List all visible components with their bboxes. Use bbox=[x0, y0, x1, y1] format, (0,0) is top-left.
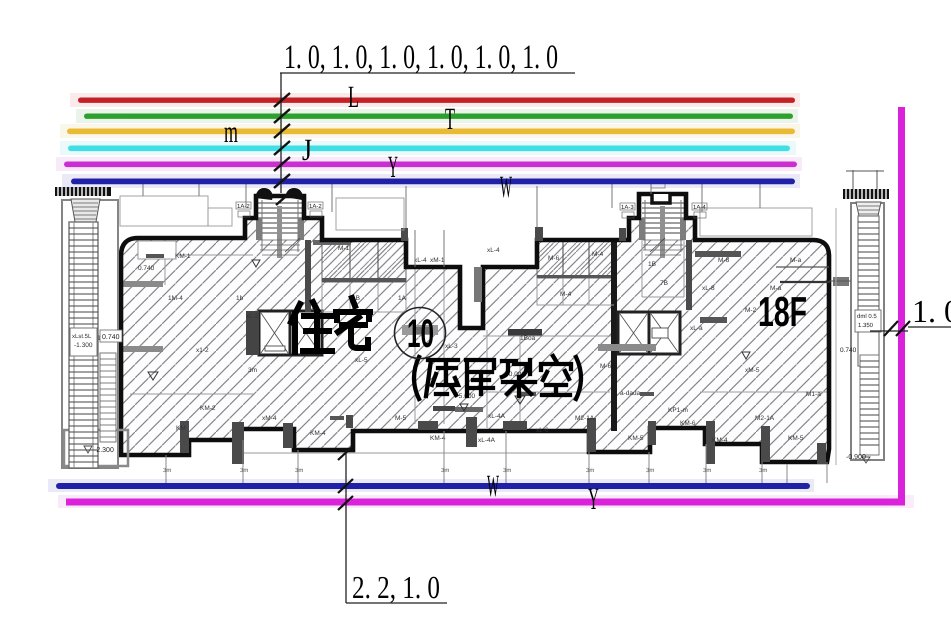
svg-text:xM-1: xM-1 bbox=[430, 257, 445, 264]
svg-text:1.350: 1.350 bbox=[858, 322, 874, 329]
svg-text:M-5: M-5 bbox=[395, 415, 407, 422]
svg-text:xL-2: xL-2 bbox=[246, 313, 259, 320]
svg-text:3m: 3m bbox=[703, 467, 711, 474]
svg-text:Y: Y bbox=[588, 481, 599, 516]
svg-text:M-1: M-1 bbox=[338, 245, 350, 252]
svg-text:L: L bbox=[348, 79, 359, 114]
svg-text:KM-4: KM-4 bbox=[310, 430, 326, 437]
svg-text:J: J bbox=[302, 132, 312, 167]
svg-text:KM-5: KM-5 bbox=[628, 435, 644, 442]
svg-text:xLst.5L: xLst.5L bbox=[72, 333, 92, 340]
svg-text:M-2: M-2 bbox=[745, 307, 757, 314]
svg-text:xL-5: xL-5 bbox=[355, 357, 368, 364]
svg-text:1M-4: 1M-4 bbox=[168, 295, 183, 302]
svg-text:1A-2: 1A-2 bbox=[237, 203, 250, 210]
svg-text:1. 0: 1. 0 bbox=[912, 293, 951, 329]
svg-text:10: 10 bbox=[407, 312, 434, 356]
svg-text:3m: 3m bbox=[646, 467, 654, 474]
svg-text:M-4: M-4 bbox=[560, 291, 572, 298]
svg-text:1A-3: 1A-3 bbox=[621, 204, 634, 211]
svg-text:1A: 1A bbox=[398, 295, 407, 302]
svg-text:W: W bbox=[487, 468, 499, 503]
svg-text:KM-2: KM-2 bbox=[200, 405, 216, 412]
svg-text:M2-1A: M2-1A bbox=[755, 415, 775, 422]
svg-text:3m: 3m bbox=[295, 467, 303, 474]
svg-text:0.740: 0.740 bbox=[102, 334, 120, 341]
svg-text:1. 0, 1. 0, 1. 0, 1. 0, 1. 0,: 1. 0, 1. 0, 1. 0, 1. 0, 1. 0, 1. 0 bbox=[284, 39, 558, 76]
svg-text:2. 2, 1. 0: 2. 2, 1. 0 bbox=[352, 569, 440, 605]
svg-text:xM-5: xM-5 bbox=[745, 367, 760, 374]
svg-text:xL-4A: xL-4A bbox=[488, 413, 506, 420]
svg-text:0.740: 0.740 bbox=[138, 265, 155, 272]
svg-text:a-dada: a-dada bbox=[620, 390, 641, 397]
svg-text:x1-2: x1-2 bbox=[196, 347, 209, 354]
svg-text:0.740: 0.740 bbox=[840, 347, 857, 354]
svg-text:3m: 3m bbox=[441, 467, 449, 474]
svg-text:3m: 3m bbox=[163, 467, 171, 474]
svg-text:M-a: M-a bbox=[790, 257, 802, 264]
svg-text:-1.300: -1.300 bbox=[74, 342, 93, 349]
svg-text:3m: 3m bbox=[759, 467, 767, 474]
svg-text:-2.300: -2.300 bbox=[94, 447, 114, 454]
svg-text:KM-5: KM-5 bbox=[788, 435, 804, 442]
svg-text:18F: 18F bbox=[758, 288, 807, 335]
svg-text:m: m bbox=[224, 114, 238, 149]
svg-text:KP1-m: KP1-m bbox=[668, 407, 688, 414]
svg-text:Y: Y bbox=[388, 149, 398, 184]
svg-text:1B: 1B bbox=[648, 261, 656, 268]
svg-text:W: W bbox=[500, 169, 512, 204]
svg-text:3m: 3m bbox=[240, 467, 248, 474]
svg-text:1A-4: 1A-4 bbox=[693, 204, 706, 211]
svg-text:1Boa: 1Boa bbox=[520, 335, 536, 342]
svg-text:xL-4A: xL-4A bbox=[478, 437, 496, 444]
svg-text:xL-6: xL-6 bbox=[536, 427, 549, 434]
svg-text:3m: 3m bbox=[503, 467, 511, 474]
svg-text:M-4: M-4 bbox=[592, 251, 604, 258]
svg-text:-0.900: -0.900 bbox=[846, 454, 866, 461]
svg-text:T: T bbox=[445, 101, 455, 136]
svg-text:KM-6: KM-6 bbox=[680, 420, 696, 427]
svg-text:xL-4: xL-4 bbox=[487, 247, 500, 254]
svg-text:xL-8: xL-8 bbox=[702, 285, 715, 292]
svg-text:M-8: M-8 bbox=[718, 257, 730, 264]
svg-text:3m: 3m bbox=[248, 367, 257, 374]
svg-text:KM-1: KM-1 bbox=[175, 253, 191, 260]
svg-text:7B: 7B bbox=[660, 280, 668, 287]
svg-text:xL-a: xL-a bbox=[690, 325, 703, 332]
svg-text:M-6: M-6 bbox=[600, 363, 612, 370]
svg-text:M2-1A: M2-1A bbox=[575, 415, 595, 422]
svg-text:3m: 3m bbox=[586, 467, 594, 474]
svg-text:xL-3: xL-3 bbox=[445, 343, 458, 350]
svg-text:KM: KM bbox=[176, 425, 186, 432]
svg-text:M1-a: M1-a bbox=[806, 391, 821, 398]
svg-text:dml 0.5: dml 0.5 bbox=[857, 313, 877, 320]
svg-text:xM-4: xM-4 bbox=[262, 415, 277, 422]
svg-text:1b: 1b bbox=[236, 295, 244, 302]
svg-text:M-6: M-6 bbox=[548, 255, 560, 262]
svg-text:KM-4: KM-4 bbox=[712, 437, 728, 444]
svg-text:xL-4: xL-4 bbox=[414, 257, 427, 264]
svg-text:1A-2: 1A-2 bbox=[309, 203, 322, 210]
